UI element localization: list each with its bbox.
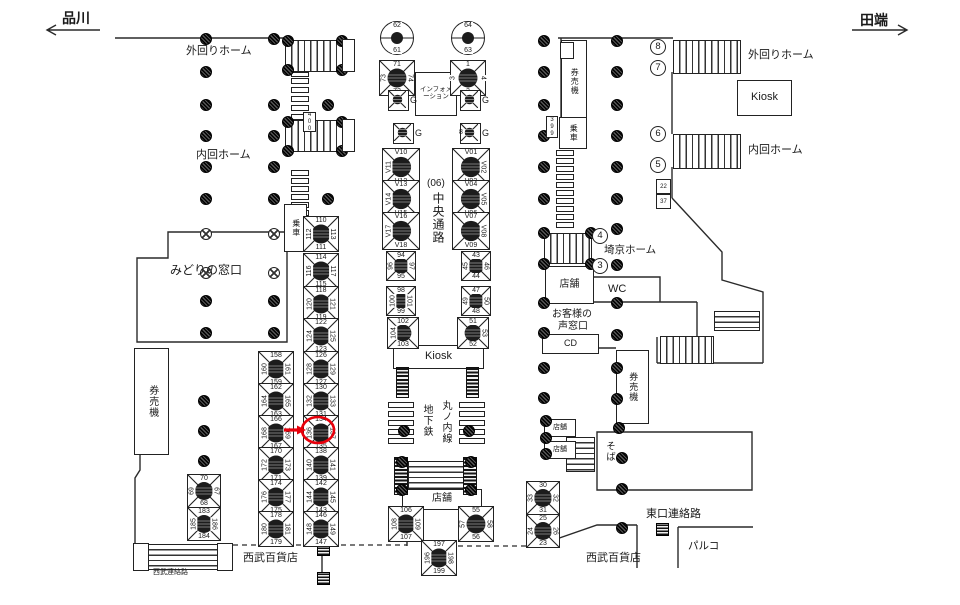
highlight-layer	[0, 0, 960, 605]
station-floor-map: 品川田端外回りホーム内回ホーム外回りホーム内回ホーム埼京ホームみどりの窓口WCお…	[0, 0, 960, 605]
highlight-circle	[302, 417, 334, 443]
